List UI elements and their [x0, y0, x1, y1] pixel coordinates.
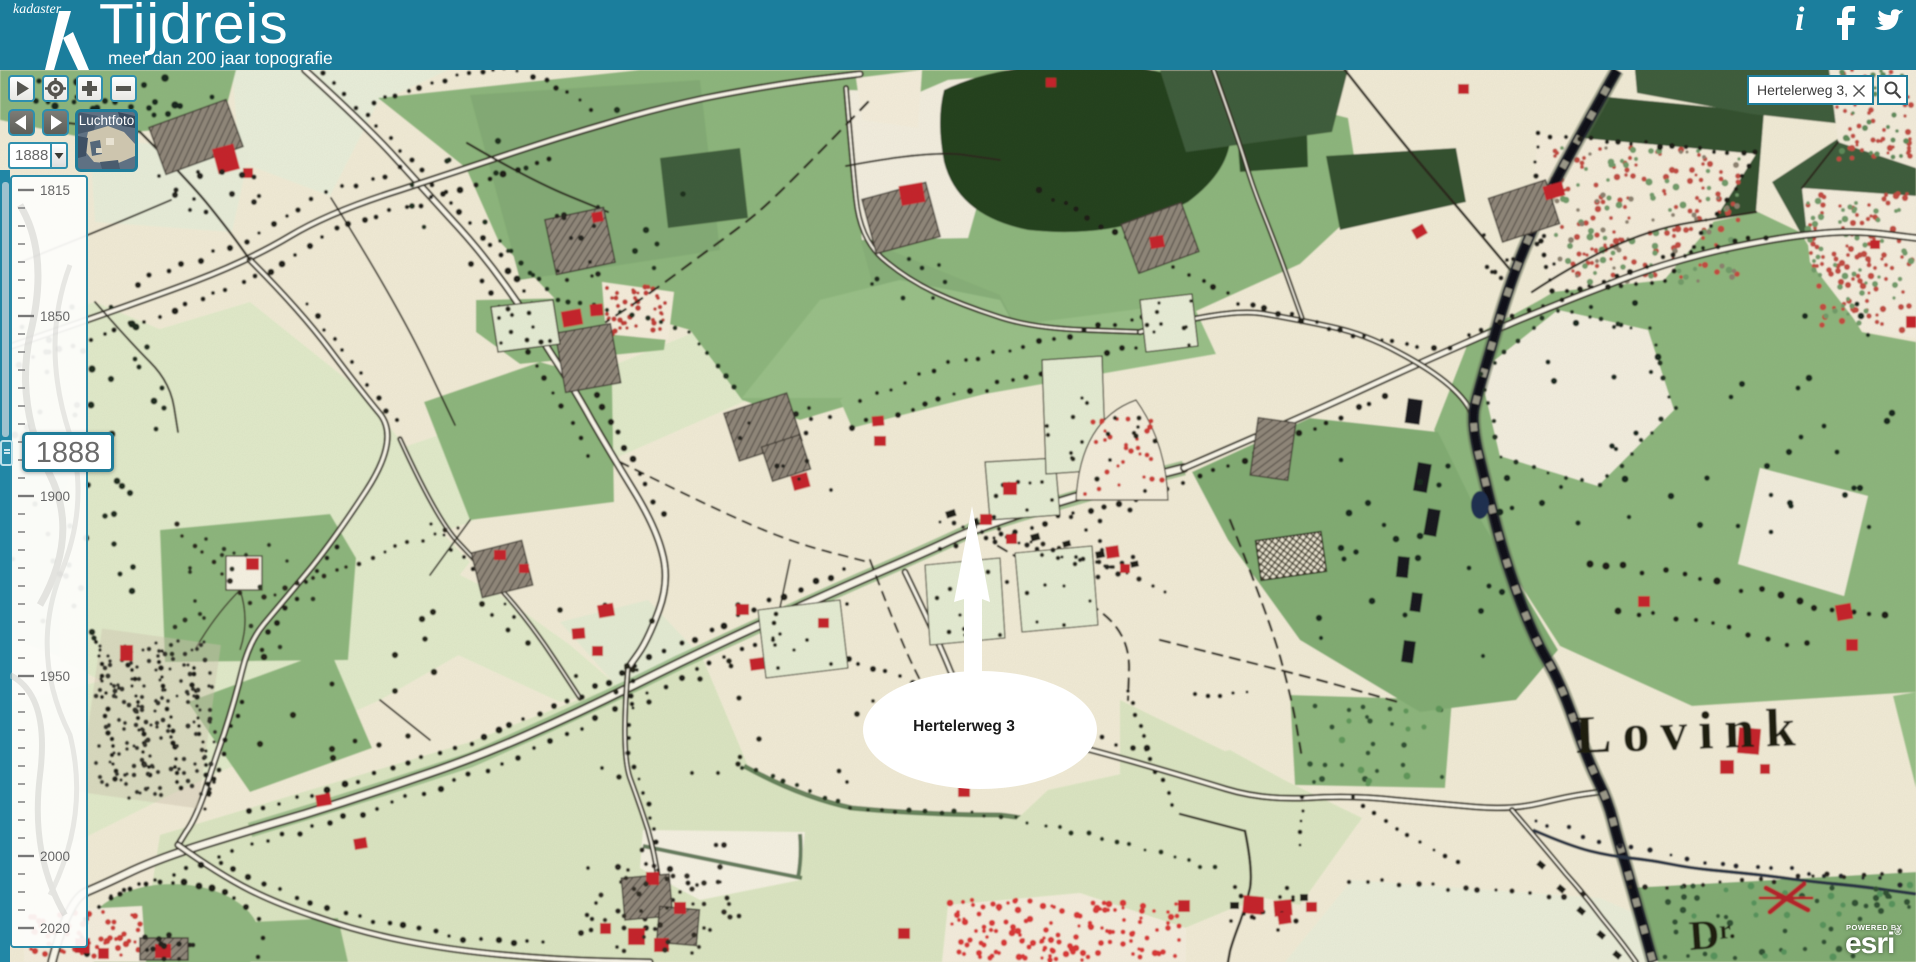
svg-text:1900: 1900	[40, 489, 70, 504]
svg-text:1850: 1850	[40, 309, 70, 324]
svg-text:1950: 1950	[40, 669, 70, 684]
svg-text:Hertelerweg 3: Hertelerweg 3	[913, 718, 1015, 735]
svg-text:2000: 2000	[40, 849, 70, 864]
svg-text:1815: 1815	[40, 183, 70, 198]
svg-text:2020: 2020	[40, 921, 70, 936]
